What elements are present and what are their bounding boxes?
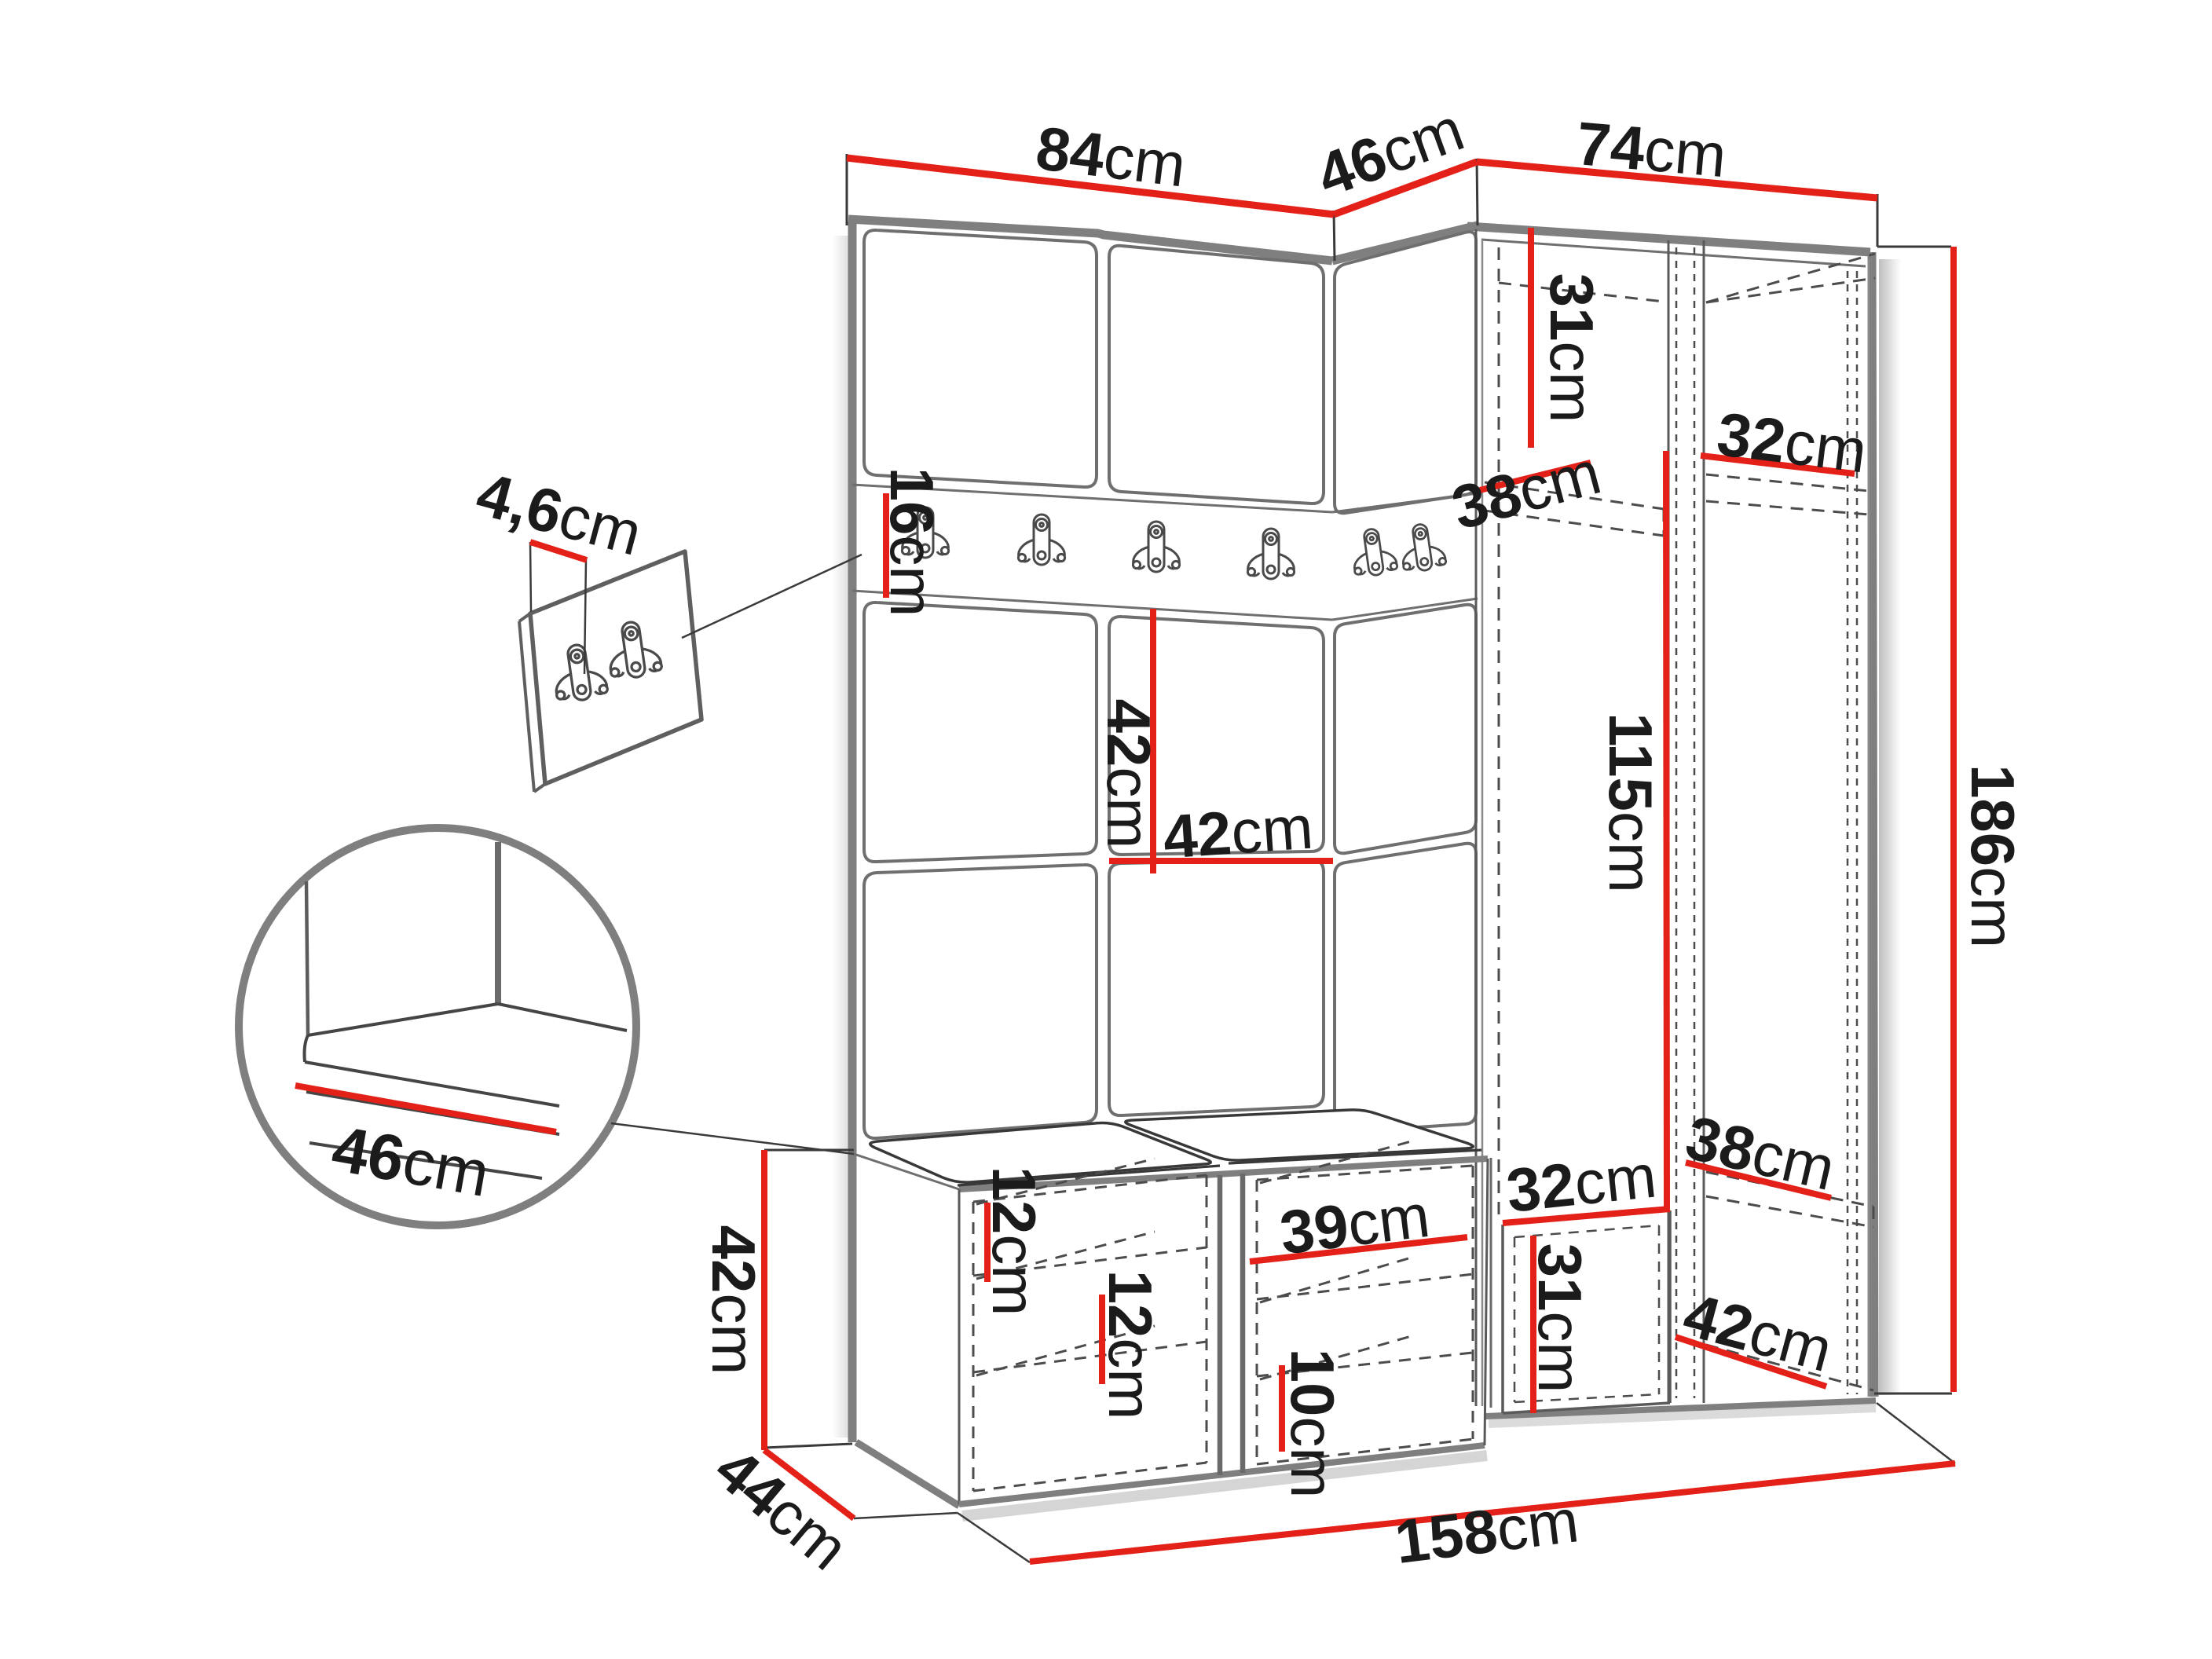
svg-text:74cm: 74cm [1574,108,1730,190]
svg-text:42cm: 42cm [1094,699,1163,849]
svg-text:10cm: 10cm [1278,1349,1347,1499]
svg-text:31cm: 31cm [1525,1243,1595,1393]
svg-text:12cm: 12cm [980,1166,1049,1317]
svg-text:42cm: 42cm [1161,793,1315,872]
svg-text:186cm: 186cm [1958,764,2027,948]
svg-text:16cm: 16cm [877,467,947,617]
svg-text:31cm: 31cm [1537,273,1606,423]
svg-text:115cm: 115cm [1596,712,1665,893]
svg-text:42cm: 42cm [699,1225,768,1375]
svg-text:12cm: 12cm [1096,1270,1165,1420]
